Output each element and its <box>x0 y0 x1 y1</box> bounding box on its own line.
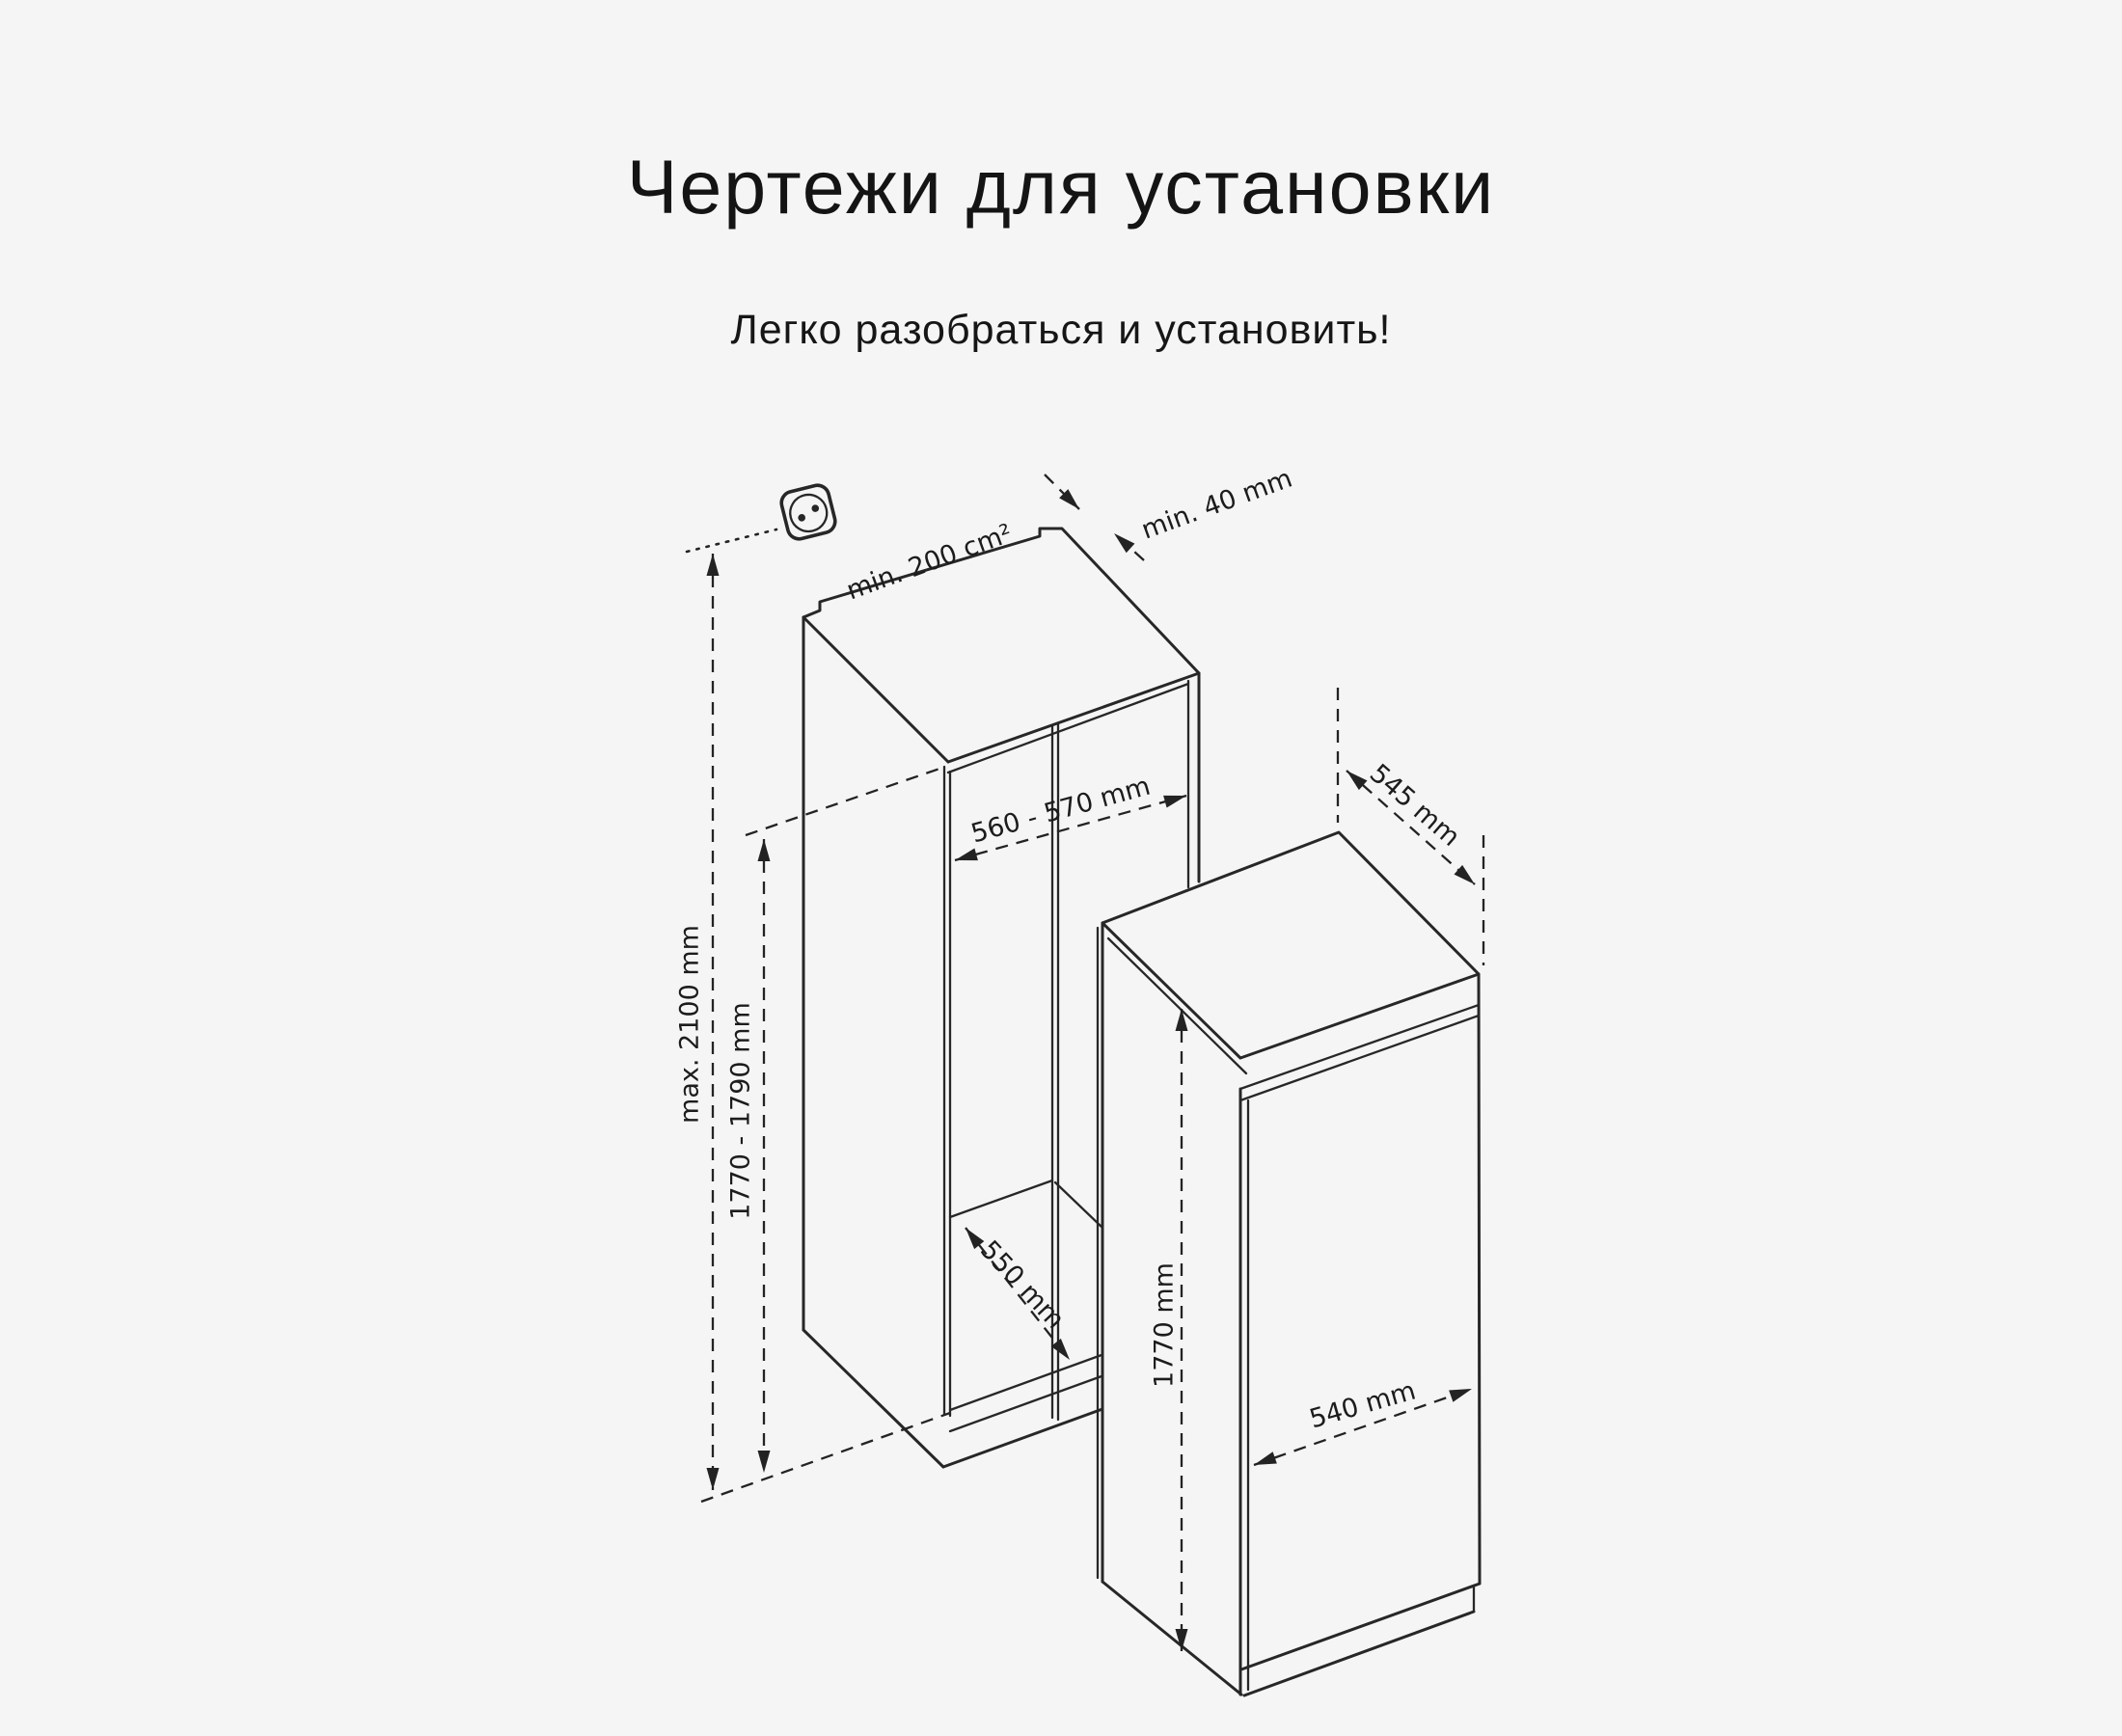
niche-bottom-left-edge <box>803 1330 943 1467</box>
outlet-hole-right <box>811 504 820 513</box>
fridge-drawing: 545 mm 1770 mm 540 mm <box>1098 688 1483 1695</box>
niche-floor-front-edge-lower <box>950 1376 1102 1431</box>
dim-niche-depth: 550 mm <box>966 1228 1071 1360</box>
niche-bottom-front-edge <box>943 1409 1102 1467</box>
outlet-hole-left <box>798 513 806 522</box>
dim-label-fridge-depth: 545 mm <box>1364 759 1465 853</box>
installation-diagram: max. 2100 mm 1770 - 1790 mm 560 - 570 mm… <box>0 0 2122 1736</box>
dim-label-rear-gap: min. 40 mm <box>1137 464 1295 546</box>
dim-niche-max-height: max. 2100 mm <box>675 554 714 1490</box>
dim-rear-gap: min. 40 mm <box>1045 464 1296 560</box>
niche-floor-front-edge <box>950 1355 1102 1410</box>
power-outlet-icon <box>779 483 838 542</box>
niche-front-top-edge <box>948 673 1199 762</box>
niche-floor-back-edge <box>950 1180 1052 1217</box>
fridge-right-edge <box>1479 974 1480 1584</box>
dim-label-inner-height: 1770 - 1790 mm <box>726 1002 756 1220</box>
dim-label-fridge-height: 1770 mm <box>1150 1262 1180 1388</box>
floor-reference-line <box>701 1413 950 1502</box>
dim-label-niche-width: 560 - 570 mm <box>967 772 1154 850</box>
niche-left-top-edge <box>803 617 948 762</box>
niche-floor-side-edge <box>1055 1182 1102 1227</box>
outlet-leader-line <box>687 529 776 552</box>
dim-label-max-height: max. 2100 mm <box>675 925 705 1124</box>
installation-page: Чертежи для установки Легко разобраться … <box>0 0 2122 1736</box>
dim-niche-inner-height: 1770 - 1790 mm <box>726 767 946 1473</box>
niche-front-top-inner-edge <box>948 684 1188 773</box>
dim-niche-width: 560 - 570 mm <box>955 772 1186 860</box>
dim-label-vent-area: min. 200 cm² <box>843 519 1017 607</box>
dim-label-niche-depth: 550 mm <box>974 1235 1071 1336</box>
